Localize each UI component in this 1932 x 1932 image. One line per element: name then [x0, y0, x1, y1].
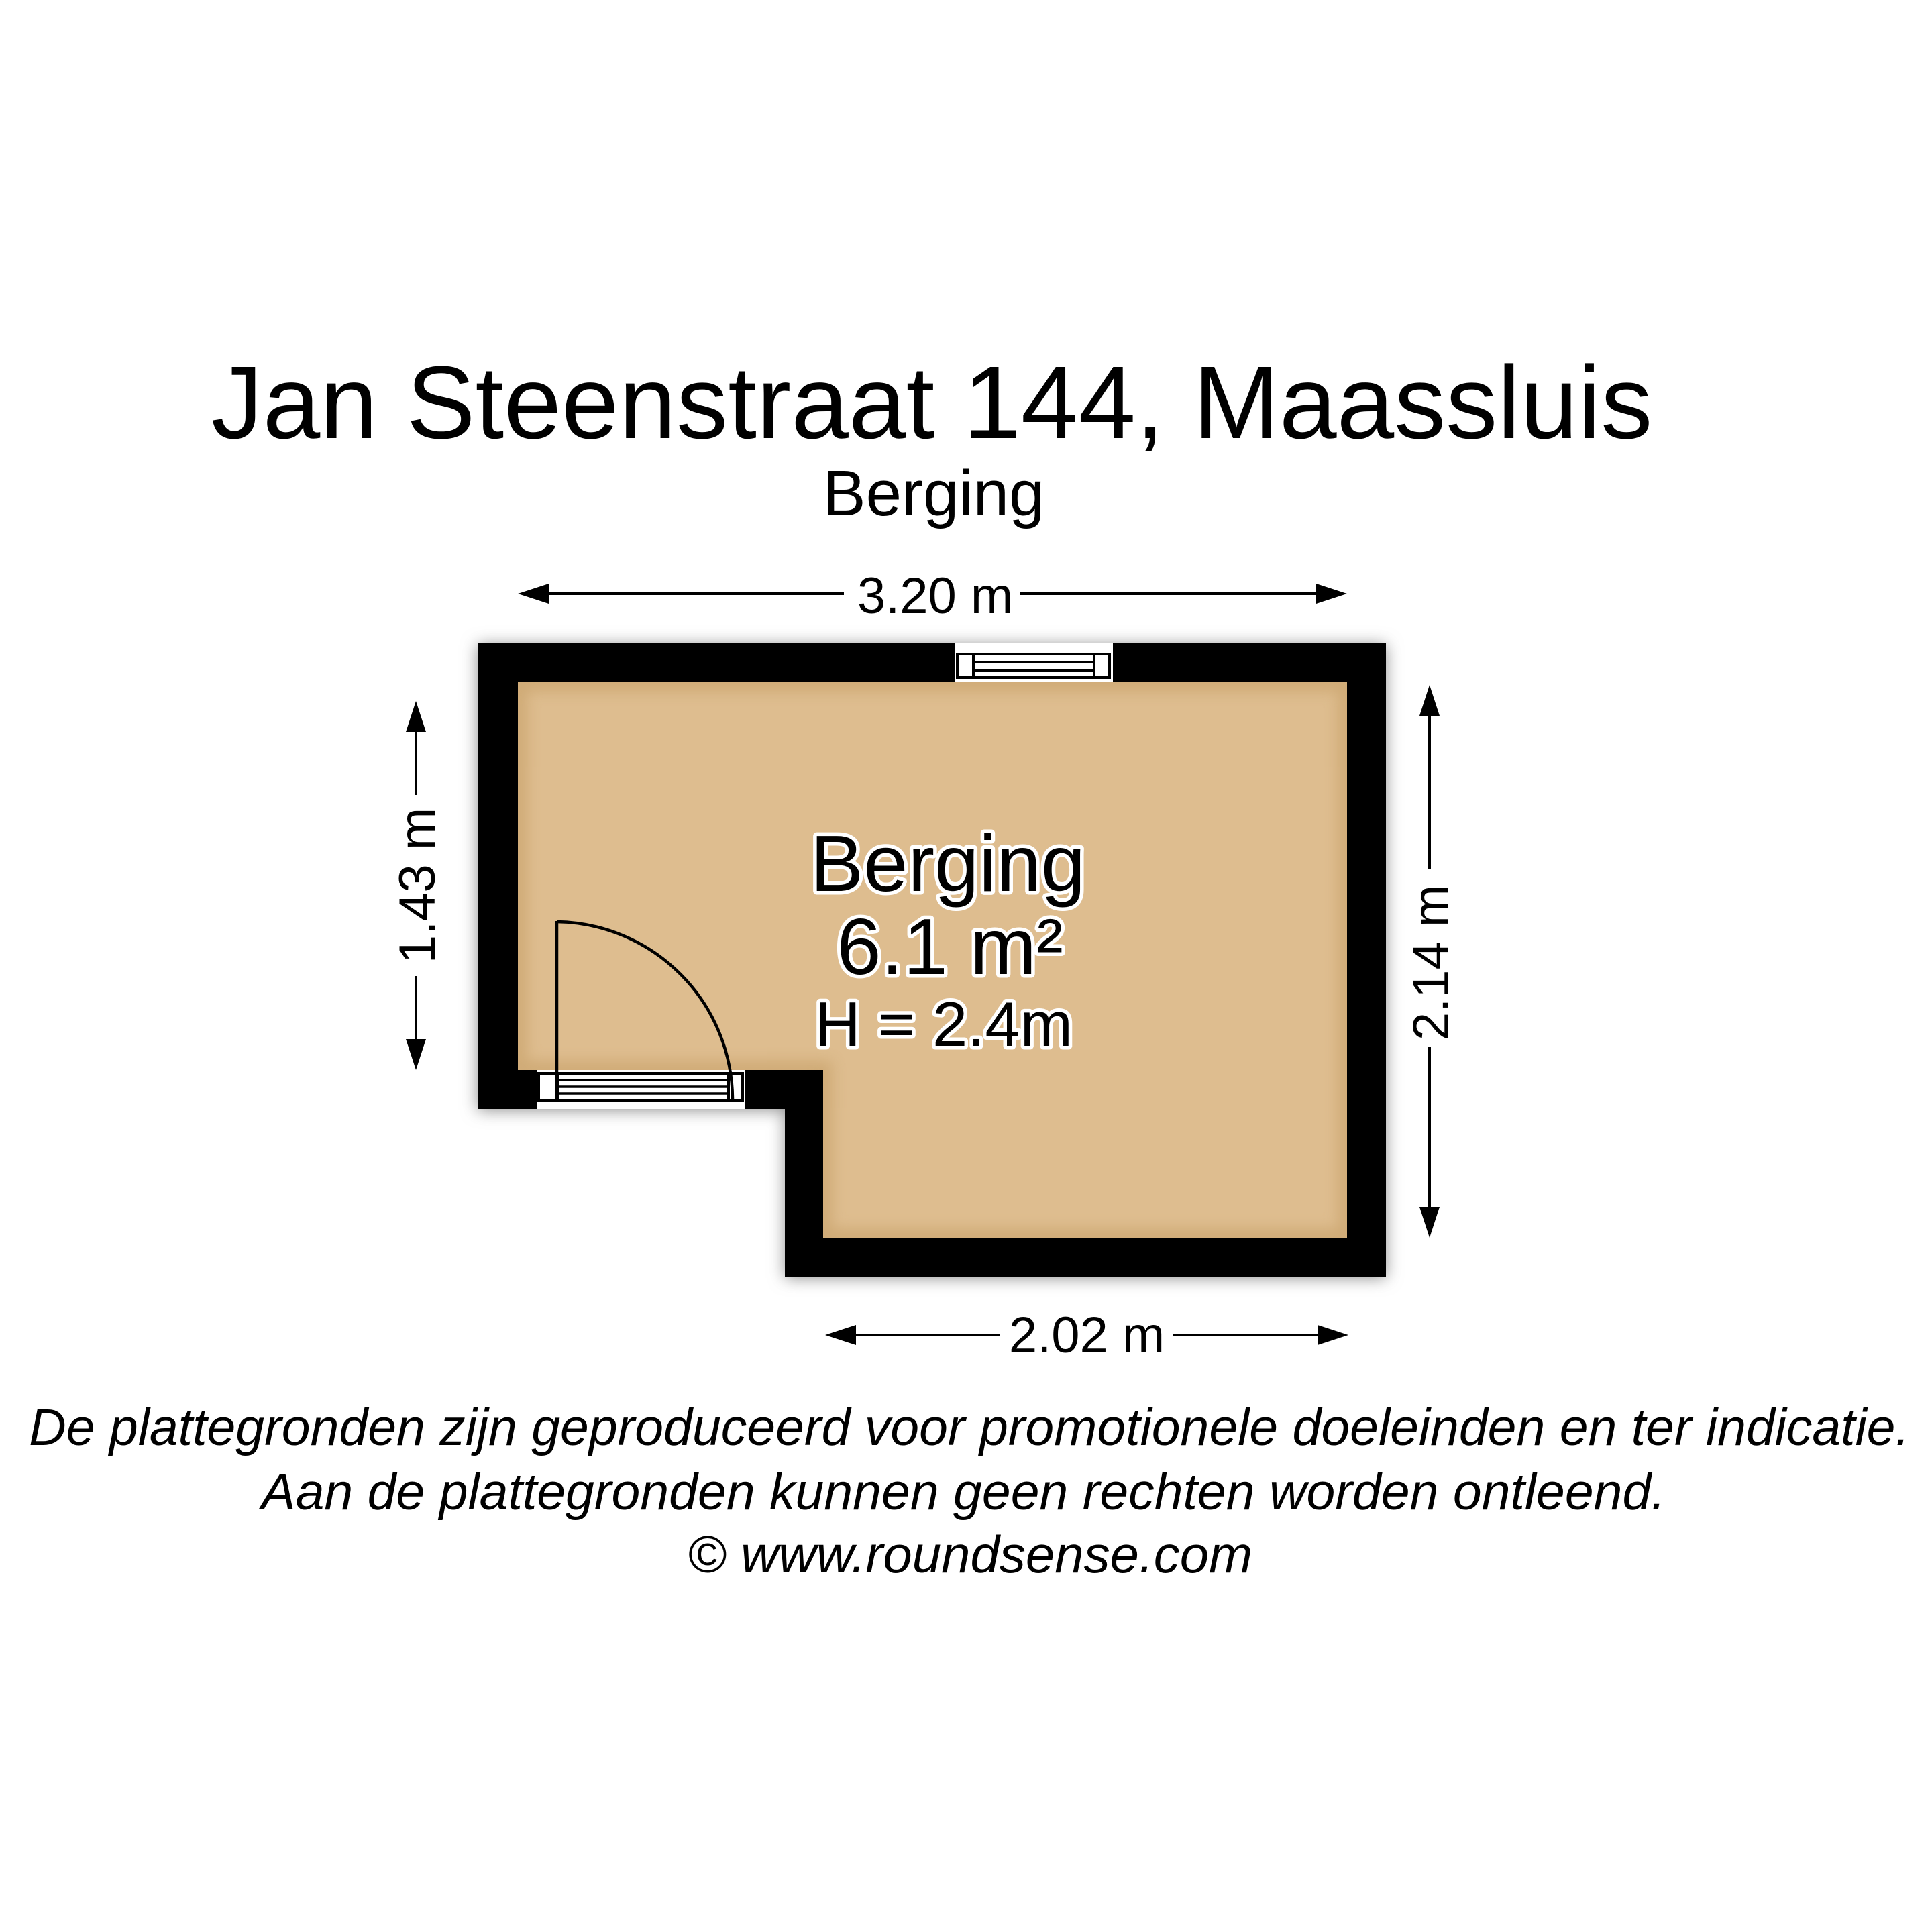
- svg-text:© www.roundsense.com: © www.roundsense.com: [688, 1525, 1252, 1584]
- svg-text:Jan Steenstraat 144, Maassluis: Jan Steenstraat 144, Maassluis: [211, 345, 1653, 460]
- svg-text:1.43 m: 1.43 m: [389, 808, 446, 963]
- svg-text:De plattegronden zijn geproduc: De plattegronden zijn geproduceerd voor …: [29, 1399, 1910, 1456]
- svg-text:3.20 m: 3.20 m: [857, 568, 1013, 625]
- svg-text:2.02 m: 2.02 m: [1009, 1307, 1165, 1364]
- svg-text:2.14 m: 2.14 m: [1403, 885, 1460, 1040]
- svg-text:Berging: Berging: [810, 819, 1085, 908]
- svg-text:Aan de plattegronden kunnen ge: Aan de plattegronden kunnen geen rechten…: [258, 1463, 1665, 1521]
- svg-text:6.1 m²: 6.1 m²: [837, 902, 1063, 991]
- svg-text:Berging: Berging: [823, 458, 1045, 529]
- svg-text:H = 2.4m: H = 2.4m: [815, 989, 1073, 1059]
